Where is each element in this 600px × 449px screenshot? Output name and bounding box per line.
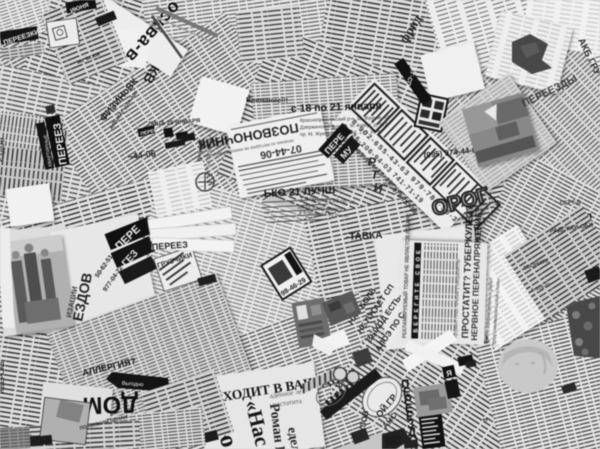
svg-text:„: „ (482, 409, 488, 423)
svg-text:Внимание!!!: Внимание!!! (246, 97, 288, 105)
svg-text:-ТАВКА: -ТАВКА (346, 230, 383, 243)
svg-text:ИВЕРСК3: ИВЕРСК3 (0, 361, 6, 394)
